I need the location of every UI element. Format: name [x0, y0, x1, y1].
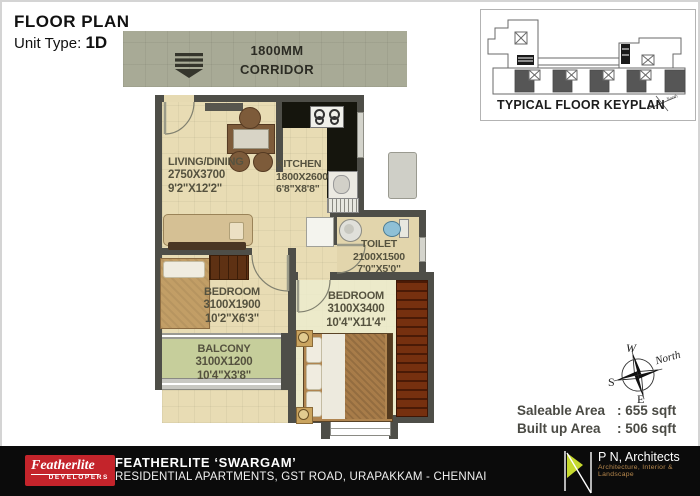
project-address: RESIDENTIAL APARTMENTS, GST ROAD, URAPAK…: [115, 471, 487, 483]
keyplan-title: TYPICAL FLOOR KEYPLAN: [497, 98, 665, 112]
corridor-width: 1800MM: [202, 42, 352, 61]
floor-plan-page: FLOOR PLAN Unit Type: 1D 1800MM CORRIDOR: [0, 0, 700, 496]
bedroom2-label: BEDROOM 3100X3400 10'4"X11'4": [306, 290, 406, 331]
svg-text:North: North: [665, 94, 679, 103]
room-dim-mm: 2750X3700: [168, 169, 278, 183]
room-dim-mm: 3100X1900: [186, 299, 278, 313]
architect-tagline: Architecture, Interior & Landscape: [598, 464, 700, 478]
pn-architects-logo: [560, 448, 598, 494]
builtup-area-row: Built up Area : 506 sqft: [517, 421, 699, 436]
featherlite-logo: Featherlite DEVELOPERS: [25, 455, 115, 486]
footer-bar: Featherlite DEVELOPERS FEATHERLITE ‘SWAR…: [0, 446, 700, 496]
unit-type: Unit Type: 1D: [14, 33, 107, 53]
compass-w: W: [626, 341, 636, 356]
saleable-area-row: Saleable Area : 655 sqft: [517, 403, 699, 418]
room-dim-ft: 10'4"X3'8": [168, 370, 280, 384]
kitchen-label: KITCHEN 1800X2600 6'8"X8'8": [276, 158, 338, 196]
stairs-down-icon: [175, 53, 203, 79]
room-dim-mm: 3100X1200: [168, 356, 280, 370]
unit-type-label: Unit Type:: [14, 35, 81, 52]
room-name: LIVING/DINING: [168, 156, 278, 169]
builtup-area-value: : 506 sqft: [617, 421, 676, 436]
compass-s: S: [608, 375, 615, 390]
featherlite-logo-name: Featherlite: [31, 458, 99, 475]
bedroom1-label: BEDROOM 3100X1900 10'2"X6'3": [186, 286, 278, 327]
toilet-label: TOILET 2100X1500 7'0"X5'0": [338, 238, 420, 276]
room-dim-mm: 3100X3400: [306, 303, 406, 317]
architect-name: P N, Architects: [598, 450, 680, 464]
keyplan: North TYPICAL FLOOR KEYPLAN: [480, 9, 696, 121]
room-name: KITCHEN: [276, 158, 338, 171]
saleable-area-label: Saleable Area: [517, 403, 617, 418]
saleable-area-value: : 655 sqft: [617, 403, 676, 418]
room-name: TOILET: [338, 238, 420, 251]
room-name: BEDROOM: [306, 290, 406, 303]
room-dim-ft: 6'8"X8'8": [276, 183, 338, 196]
room-dim-mm: 2100X1500: [338, 251, 420, 264]
project-title: FEATHERLITE ‘SWARGAM’: [115, 455, 296, 470]
living-dining-label: LIVING/DINING 2750X3700 9'2"X12'2": [168, 156, 278, 197]
room-dim-ft: 10'2"X6'3": [186, 313, 278, 327]
builtup-area-label: Built up Area: [517, 421, 617, 436]
page-title: FLOOR PLAN: [14, 12, 130, 32]
corridor-name: CORRIDOR: [202, 61, 352, 80]
room-dim-ft: 10'4"X11'4": [306, 317, 406, 331]
corridor-label: 1800MM CORRIDOR: [202, 42, 352, 80]
balcony-label: BALCONY 3100X1200 10'4"X3'8": [168, 343, 280, 384]
room-dim-mm: 1800X2600: [276, 171, 338, 184]
featherlite-logo-sub: DEVELOPERS: [49, 474, 109, 481]
room-dim-ft: 7'0"X5'0": [338, 263, 420, 276]
room-name: BALCONY: [168, 343, 280, 356]
unit-type-value: 1D: [85, 33, 107, 52]
room-name: BEDROOM: [186, 286, 278, 299]
room-dim-ft: 9'2"X12'2": [168, 183, 278, 197]
